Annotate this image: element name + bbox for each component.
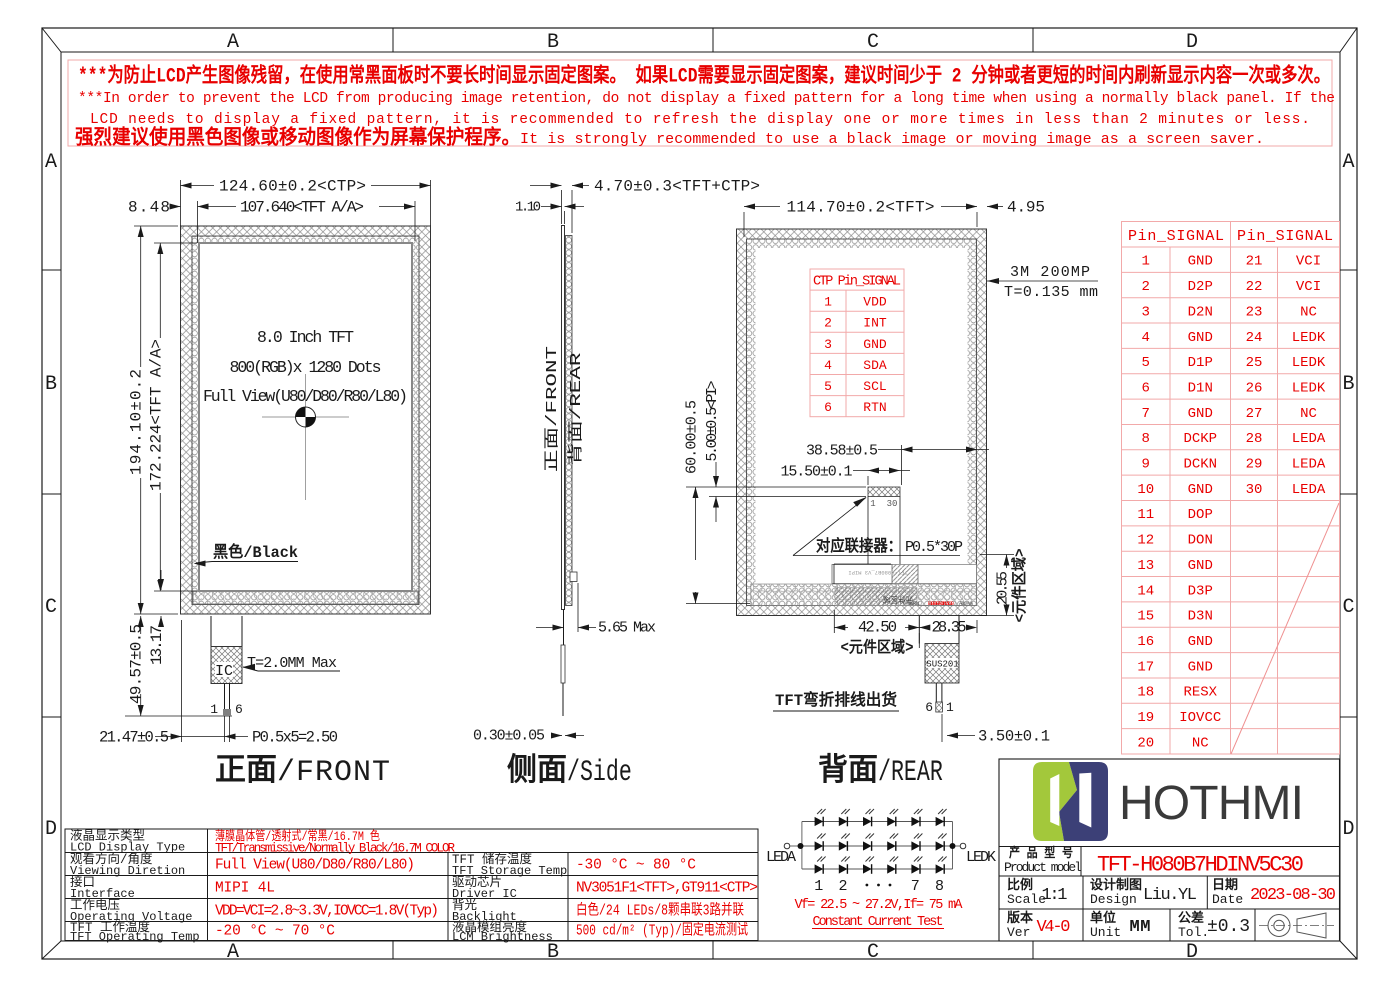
svg-text:C: C [867,941,879,964]
svg-text:20: 20 [1137,735,1154,751]
svg-text:<元件区域>: <元件区域> [1010,549,1029,623]
svg-text:LEDK: LEDK [1292,380,1326,396]
svg-text:9: 9 [1142,457,1150,473]
svg-text:/Side: /Side [567,755,632,789]
svg-text:29: 29 [1246,457,1263,473]
svg-text:1: 1 [814,878,823,895]
svg-text:38.58±0.5: 38.58±0.5 [806,443,878,460]
svg-text:/FRONT: /FRONT [277,756,390,790]
svg-text:107.640<TFT A/A>: 107.640<TFT A/A> [240,199,364,217]
svg-text:#8WA01: #8WA01 [906,601,920,607]
svg-text:D3N: D3N [1188,609,1213,625]
svg-text:RESX: RESX [1183,685,1217,701]
svg-text:42.50: 42.50 [858,619,897,637]
svg-text:13.17: 13.17 [148,625,166,665]
svg-text:1: 1 [1142,254,1150,270]
svg-text:VDD=VCI=2.8~3.3V,IOVCC=1.8V(Ty: VDD=VCI=2.8~3.3V,IOVCC=1.8V(Typ) [215,904,439,920]
svg-text:HOTHMI: HOTHMI [1119,777,1306,830]
svg-text:28: 28 [1246,431,1263,447]
svg-text:5: 5 [1142,355,1150,371]
svg-text:1: 1 [824,295,832,310]
svg-text:LCD needs to display a fixed p: LCD needs to display a fixed pattern, it… [90,112,1310,128]
svg-text:TFT Operating Temp: TFT Operating Temp [70,930,200,944]
svg-text:Date: Date [1212,892,1243,907]
svg-text:NC: NC [1300,304,1317,320]
svg-text:GND: GND [1188,254,1213,270]
svg-text:3: 3 [824,337,832,352]
svg-text:21: 21 [1246,254,1263,270]
svg-text:6: 6 [235,702,243,717]
svg-text:NC: NC [1300,406,1317,422]
svg-text:25: 25 [1246,355,1263,371]
svg-text:1: 1 [870,499,875,509]
svg-text:D: D [1342,818,1354,841]
svg-text:4: 4 [824,358,832,373]
svg-text:VDD: VDD [863,295,887,310]
svg-text:2: 2 [824,316,832,331]
svg-text:-30 °C ~ 80 °C: -30 °C ~ 80 °C [576,858,696,874]
svg-text:***为防止LCD产生图像残留，在使用常黑面板时不要长时间显: ***为防止LCD产生图像残留，在使用常黑面板时不要长时间显示固定图案。 如果L… [78,63,1330,89]
svg-text:LCM Brightness: LCM Brightness [452,930,553,944]
svg-text:5.00±0.5<PI>: 5.00±0.5<PI> [704,381,721,462]
svg-text:B: B [547,31,559,54]
svg-text:D2N: D2N [1188,304,1213,320]
svg-text:23: 23 [1246,304,1263,320]
svg-text:D3P: D3P [1188,583,1213,599]
svg-text:E1080B7HDINV5C30: E1080B7HDINV5C30 [928,600,954,607]
svg-text:2: 2 [1142,279,1150,295]
svg-text:16: 16 [1137,634,1154,650]
svg-text:2: 2 [838,878,847,895]
svg-text:SDA: SDA [863,358,887,373]
svg-text:DCKN: DCKN [1183,457,1217,473]
svg-text:8: 8 [1142,431,1150,447]
svg-text:8.0 Inch TFT: 8.0 Inch TFT [257,328,354,347]
svg-text:强烈建议使用黑色图像或移动图像作为屏幕保护程序。: 强烈建议使用黑色图像或移动图像作为屏幕保护程序。 [75,125,520,151]
svg-text:3: 3 [1142,304,1150,320]
svg-text:IC: IC [215,663,233,680]
svg-text:6: 6 [1142,380,1150,396]
svg-text:/REAR: /REAR [878,755,943,789]
svg-text:正面: 正面 [215,755,277,790]
svg-text:GND: GND [1188,558,1213,574]
svg-text:GND: GND [1188,406,1213,422]
svg-text:11: 11 [1137,507,1154,523]
svg-text:GND: GND [1188,634,1213,650]
svg-text:LEDA: LEDA [1292,482,1326,498]
svg-text:0.30±0.05: 0.30±0.05 [473,728,545,745]
svg-text:C: C [1342,596,1354,619]
svg-text:GND: GND [1188,330,1213,346]
svg-text:背面/REAR: 背面/REAR [567,353,585,466]
svg-text:22: 22 [1246,279,1263,295]
svg-text:VCI: VCI [1296,254,1321,270]
svg-text:1.10: 1.10 [515,200,541,216]
svg-text:19: 19 [1137,710,1154,726]
svg-text:TFT弯折排线出货: TFT弯折排线出货 [775,690,897,710]
svg-text:114.70±0.2<TFT>: 114.70±0.2<TFT> [787,199,935,217]
svg-text:MIPI 4L: MIPI 4L [215,881,275,897]
svg-text:LEDA: LEDA [1292,457,1326,473]
svg-text:124.60±0.2<CTP>: 124.60±0.2<CTP> [219,178,366,196]
svg-text:GND: GND [1188,659,1213,675]
svg-text:5: 5 [824,379,832,394]
svg-text:D1N: D1N [1188,380,1213,396]
svg-text:27: 27 [1246,406,1263,422]
svg-text:28.35: 28.35 [932,619,967,637]
svg-text:T=2.0MM Max: T=2.0MM Max [247,655,337,672]
svg-text:TFT-H080B7HDINV5C30: TFT-H080B7HDINV5C30 [1097,853,1304,878]
svg-text:SUS201: SUS201 [926,660,958,670]
svg-text:VCI: VCI [1296,279,1321,295]
svg-text:Full View(U80/D80/R80/L80): Full View(U80/D80/R80/L80) [215,858,415,874]
svg-text:T=0.135 mm: T=0.135 mm [1004,284,1098,301]
svg-text:C: C [867,31,879,54]
svg-text:800(RGB)x 1280 Dots: 800(RGB)x 1280 Dots [230,358,382,377]
svg-text:Full View(U80/D80/R80/L80): Full View(U80/D80/R80/L80) [203,387,408,406]
svg-text:正面/FRONT: 正面/FRONT [544,346,561,472]
svg-text:DOP: DOP [1188,507,1213,523]
svg-text:MM: MM [1130,918,1151,937]
svg-text:500 cd/m² (Typ)/固定电流测试: 500 cd/m² (Typ)/固定电流测试 [576,922,748,940]
svg-text:D: D [1186,31,1198,54]
svg-text:A: A [45,151,57,174]
svg-text:INT: INT [863,316,887,331]
svg-text:***In order to prevent the LCD: ***In order to prevent the LCD from prod… [78,91,1335,107]
svg-text:LEDK: LEDK [1292,355,1326,371]
svg-text:单位: 单位 [1090,910,1116,926]
svg-text:4: 4 [1142,330,1150,346]
svg-text:设计制图: 设计制图 [1090,877,1142,893]
svg-text:TFT/Transmissive/Normally Blac: TFT/Transmissive/Normally Black/16.7M CO… [215,842,455,856]
svg-text:公差: 公差 [1178,910,1204,926]
svg-text:20.55: 20.55 [995,571,1012,605]
svg-text:Pin_SIGNAL: Pin_SIGNAL [1128,228,1224,245]
svg-text:NV3051F1<TFT>,GT911<CTP>: NV3051F1<TFT>,GT911<CTP> [576,881,758,897]
svg-text:C: C [45,596,57,619]
svg-text:IOVCC: IOVCC [1179,710,1221,726]
svg-text:LEDA: LEDA [1292,431,1326,447]
svg-text:DCKP: DCKP [1183,431,1217,447]
svg-text:侧面: 侧面 [507,753,567,790]
svg-text:A: A [1342,151,1354,174]
svg-text:5.65 Max: 5.65 Max [598,620,656,637]
svg-text:黑色/Black: 黑色/Black [213,542,298,562]
svg-text:13: 13 [1137,558,1154,574]
svg-text:CTP Pin_SIGNAL: CTP Pin_SIGNAL [813,275,901,290]
svg-text:白色/24 LEDs/8颗串联3路并联: 白色/24 LEDs/8颗串联3路并联 [576,902,744,920]
svg-text:8.48: 8.48 [128,199,170,217]
svg-text:7: 7 [911,878,920,895]
svg-text:日期: 日期 [1212,878,1238,893]
svg-text:Design: Design [1090,892,1137,907]
svg-text:DON: DON [1188,533,1213,549]
svg-text:172.224<TFT A/A>: 172.224<TFT A/A> [147,339,165,491]
svg-text:Vf= 22.5 ~ 27.2V,If= 75 mA: Vf= 22.5 ~ 27.2V,If= 75 mA [795,898,964,913]
svg-text:LEDK: LEDK [1292,330,1326,346]
svg-text:6: 6 [925,700,933,715]
svg-text:A: A [227,941,239,964]
svg-text:1: 1 [210,702,218,717]
svg-text:1:1: 1:1 [1042,886,1068,905]
svg-text:P0.5*30P: P0.5*30P [905,539,963,556]
svg-text:A01#VA: A01#VA [959,601,973,607]
svg-text:B: B [45,373,57,396]
svg-text:49.57±0.5: 49.57±0.5 [128,624,146,704]
svg-text:6: 6 [824,400,832,415]
svg-text:TFT-H080B7_V3 MIPI: TFT-H080B7_V3 MIPI [848,569,907,576]
svg-text:4.70±0.3<TFT+CTP>: 4.70±0.3<TFT+CTP> [594,178,760,196]
svg-text:B: B [1342,373,1354,396]
svg-text:8: 8 [935,878,944,895]
svg-text:12: 12 [1137,533,1154,549]
svg-text:背面: 背面 [818,753,878,790]
svg-text:Product model: Product model [1004,860,1082,875]
svg-text:±0.3: ±0.3 [1207,917,1250,937]
svg-text:10: 10 [1137,482,1154,498]
svg-text:21.47±0.5: 21.47±0.5 [99,729,169,747]
svg-text:Ver: Ver [1007,925,1030,940]
svg-text:3M 200MP: 3M 200MP [1010,264,1090,281]
svg-text:Scale: Scale [1007,892,1046,907]
svg-text:7: 7 [1142,406,1150,422]
svg-text:SCL: SCL [863,379,886,394]
svg-text:Constant Current Test: Constant Current Test [813,915,944,930]
svg-text:15: 15 [1137,609,1154,625]
svg-text:-20 °C ~ 70 °C: -20 °C ~ 70 °C [215,924,335,940]
svg-text:Tol.: Tol. [1178,925,1209,940]
svg-text:60.00±0.5: 60.00±0.5 [684,400,701,474]
svg-text:GND: GND [863,337,887,352]
svg-text:26: 26 [1246,380,1263,396]
svg-text:D: D [45,818,57,841]
svg-text:2023-08-30: 2023-08-30 [1250,886,1336,905]
svg-text:LEDK: LEDK [966,849,996,866]
svg-text:24: 24 [1246,330,1263,346]
svg-text:A: A [227,31,239,54]
svg-text:产 品 型 号: 产 品 型 号 [1009,845,1073,861]
svg-text:LEDA: LEDA [766,849,796,866]
svg-text:30: 30 [1246,482,1263,498]
svg-text:B: B [547,941,559,964]
svg-text:17: 17 [1137,659,1154,675]
svg-text:GND: GND [1188,482,1213,498]
svg-text:RTN: RTN [863,400,886,415]
svg-text:对应联接器：: 对应联接器： [816,536,902,556]
svg-text:D2P: D2P [1188,279,1213,295]
svg-text:Liu.YL: Liu.YL [1143,886,1197,905]
svg-text:NC: NC [1192,735,1209,751]
svg-text:30: 30 [887,499,898,509]
svg-text:Pin_SIGNAL: Pin_SIGNAL [1237,228,1333,245]
svg-text:1: 1 [946,700,954,715]
svg-text:15.50±0.1: 15.50±0.1 [781,464,853,481]
svg-text:194.10±0.2: 194.10±0.2 [128,369,146,475]
svg-text:版本: 版本 [1007,910,1033,926]
svg-text:D1P: D1P [1188,355,1213,371]
svg-text:3.50±0.1: 3.50±0.1 [978,728,1050,746]
svg-text:D: D [1186,941,1198,964]
svg-text:It is strongly recommended to: It is strongly recommended to use a blac… [520,131,1264,148]
svg-text:V4-0: V4-0 [1037,918,1071,937]
svg-text:4.95: 4.95 [1007,199,1045,217]
svg-text:18: 18 [1137,685,1154,701]
svg-text:Unit: Unit [1090,925,1121,940]
svg-text:P0.5x5=2.50: P0.5x5=2.50 [252,729,338,747]
svg-text:比例: 比例 [1007,877,1033,893]
svg-text:<元件区域>: <元件区域> [841,637,914,657]
svg-text:14: 14 [1137,583,1154,599]
